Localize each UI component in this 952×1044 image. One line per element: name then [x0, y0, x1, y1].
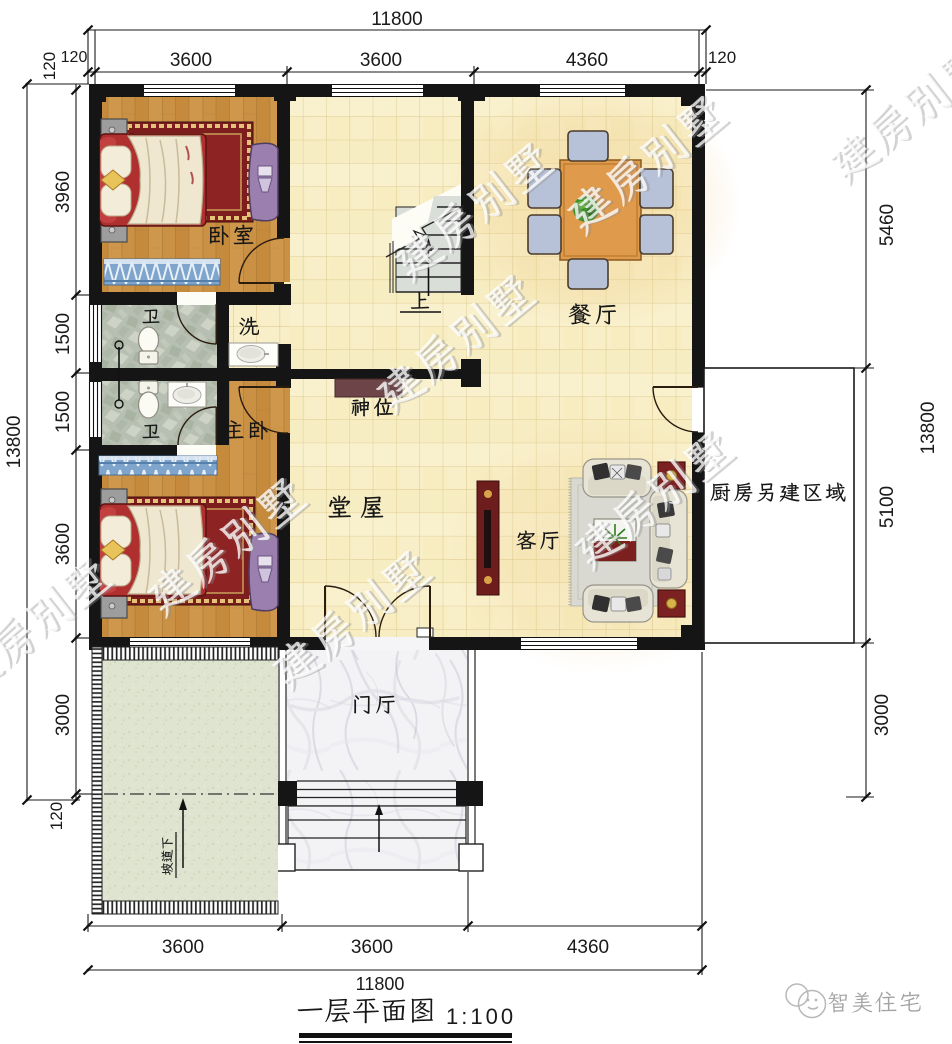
svg-text:11800: 11800: [371, 9, 422, 30]
svg-text:13800: 13800: [4, 416, 25, 469]
svg-text:1500: 1500: [53, 391, 74, 433]
svg-text:3000: 3000: [872, 694, 893, 736]
svg-text:3000: 3000: [53, 694, 74, 736]
svg-text:3600: 3600: [170, 50, 212, 71]
svg-text:3960: 3960: [53, 171, 74, 213]
svg-text:5460: 5460: [877, 204, 898, 246]
svg-text:3600: 3600: [162, 937, 204, 958]
svg-text:3600: 3600: [360, 50, 402, 71]
svg-text:120: 120: [47, 802, 66, 830]
svg-text:3600: 3600: [53, 523, 74, 565]
svg-text:5100: 5100: [877, 486, 898, 528]
svg-text:1:100: 1:100: [446, 1004, 516, 1029]
svg-text:4360: 4360: [566, 50, 608, 71]
svg-text:120: 120: [708, 48, 736, 67]
svg-text:4360: 4360: [567, 937, 609, 958]
svg-text:120: 120: [40, 52, 59, 80]
svg-text:120: 120: [61, 49, 88, 66]
svg-text:3600: 3600: [351, 937, 393, 958]
svg-text:1500: 1500: [53, 313, 74, 355]
svg-text:13800: 13800: [918, 402, 939, 455]
svg-text:11800: 11800: [356, 974, 405, 994]
